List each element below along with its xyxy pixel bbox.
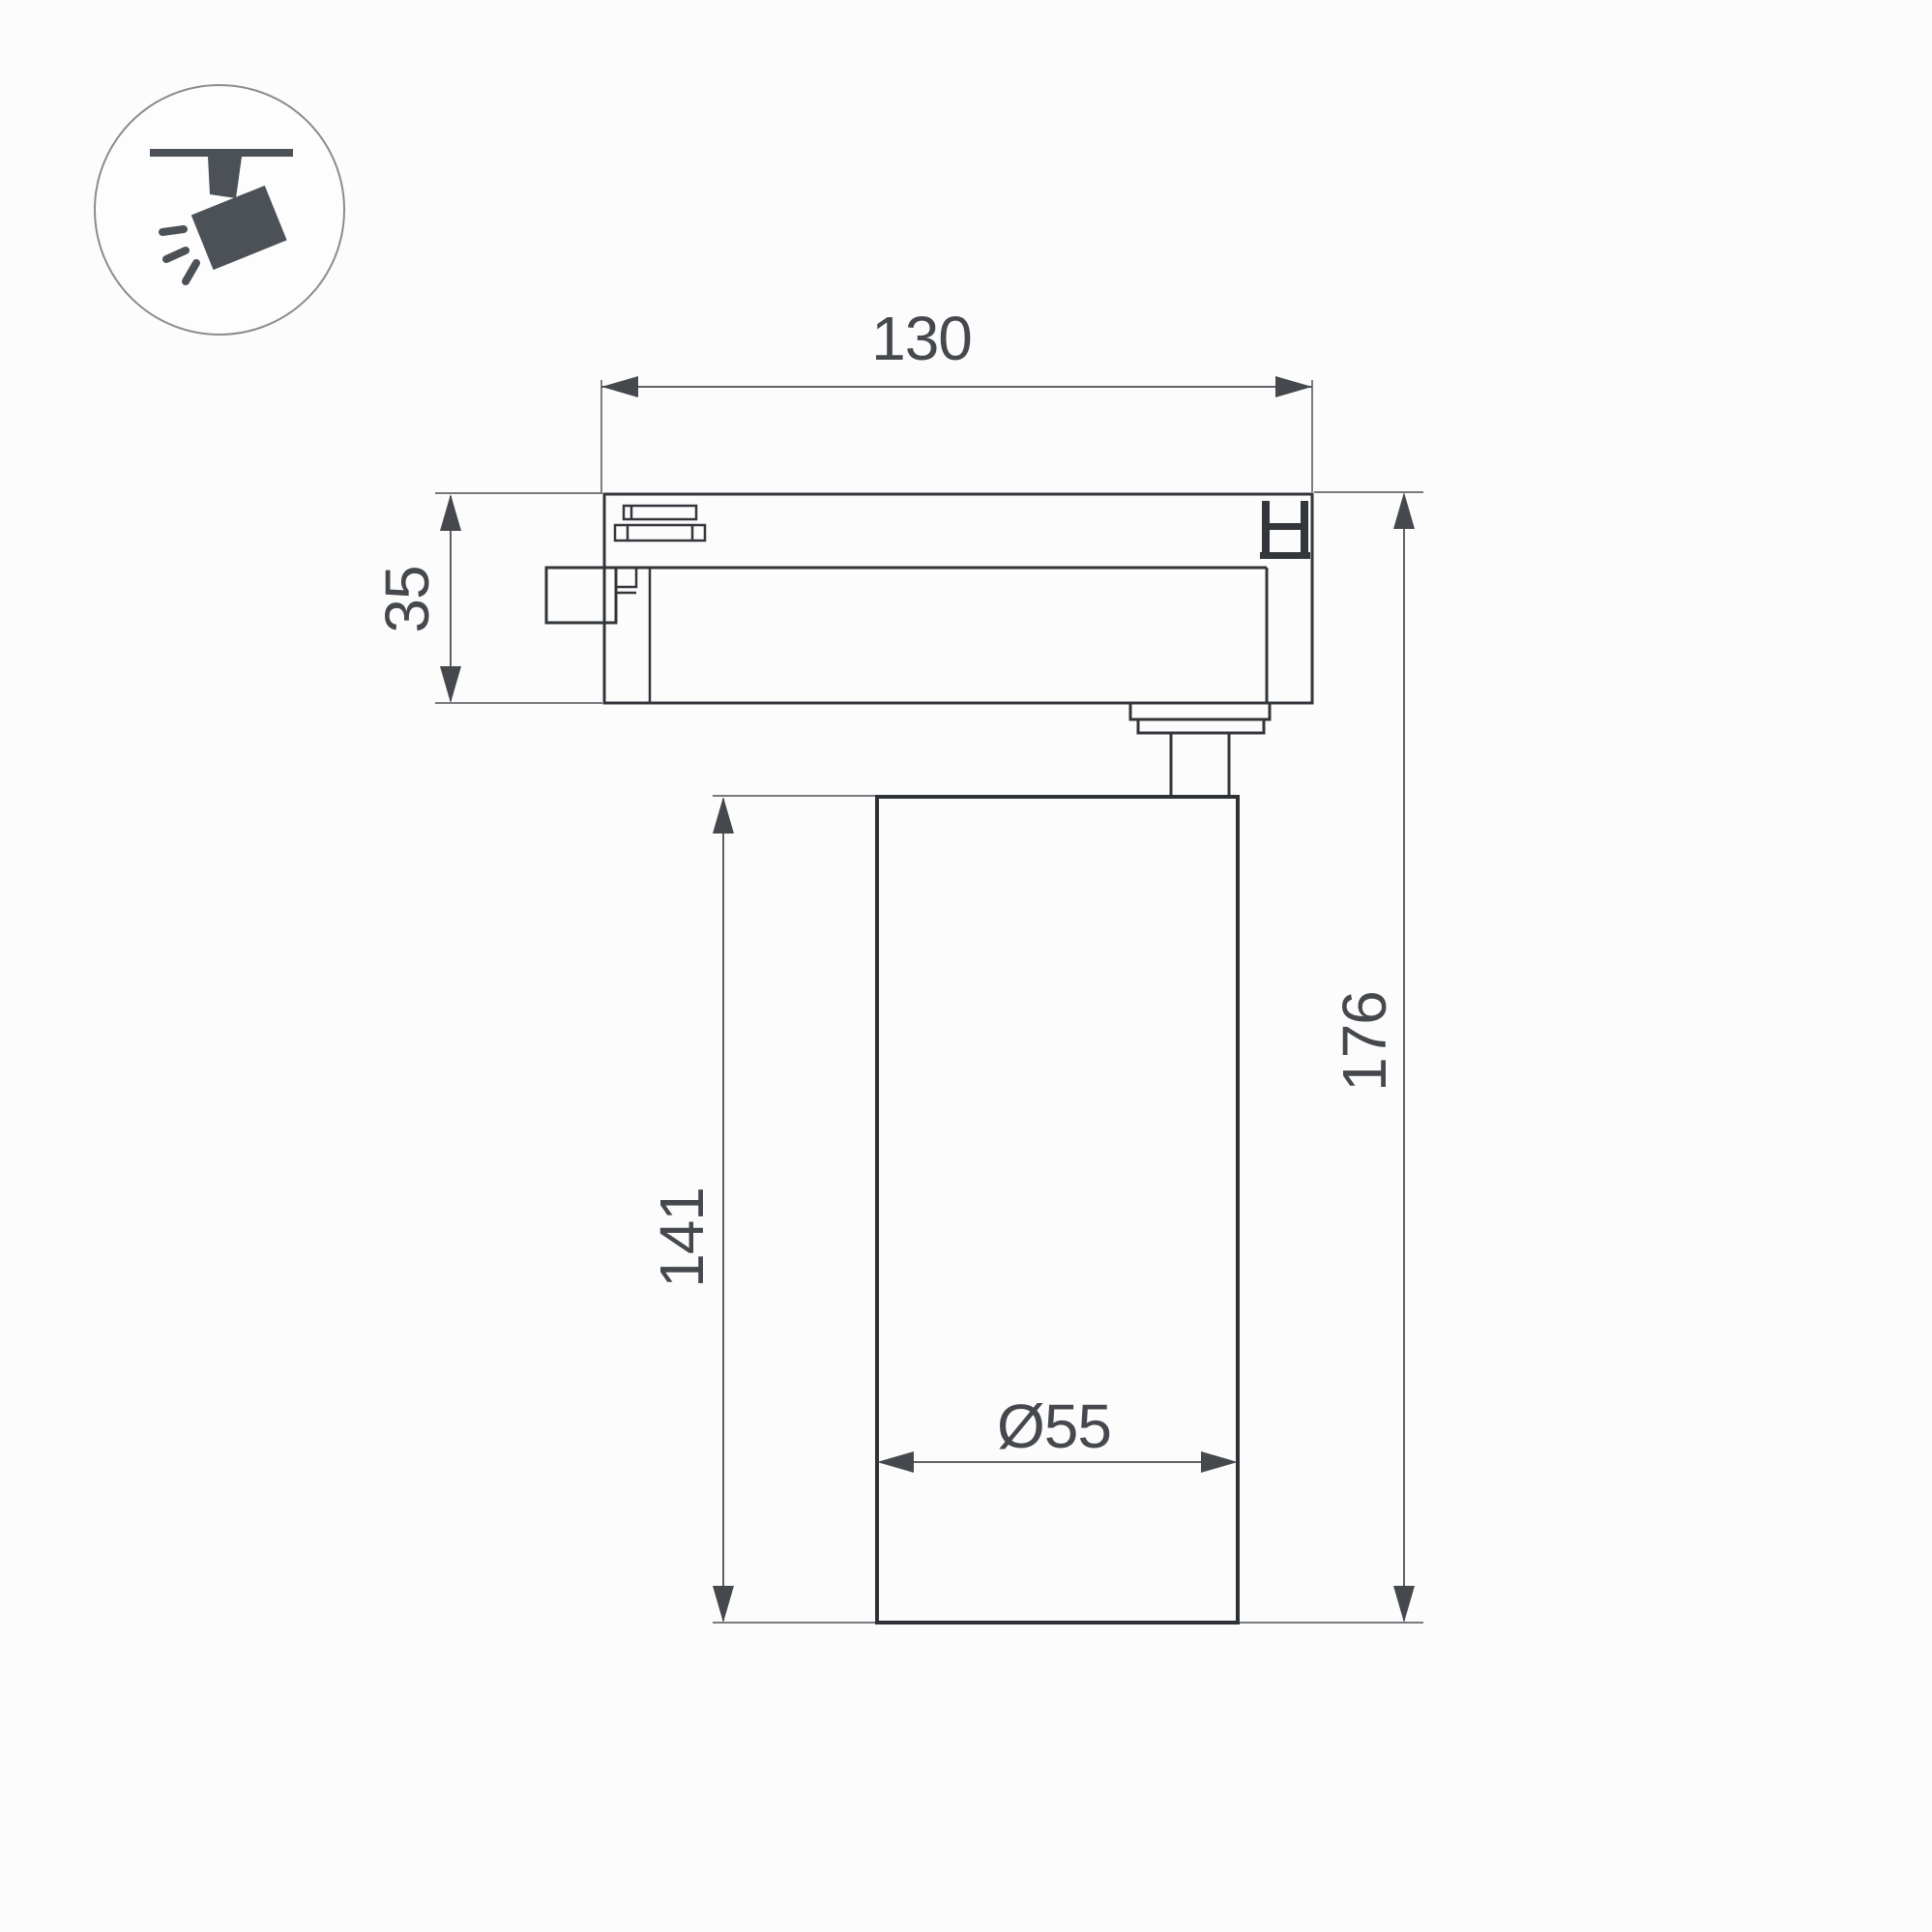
arrow-left xyxy=(877,1451,914,1473)
arrow-up xyxy=(713,797,734,834)
icon-light-ray xyxy=(162,229,184,232)
dim-track-height: 35 xyxy=(372,493,602,703)
connector-stem xyxy=(1130,703,1270,797)
track-spotlight-icon xyxy=(95,85,344,335)
icon-stem xyxy=(208,157,242,198)
dim-body-diameter: Ø55 xyxy=(877,1391,1238,1473)
dim-track-width-label: 130 xyxy=(871,304,972,373)
icon-track-bar xyxy=(150,149,293,157)
arrow-up xyxy=(1393,492,1415,529)
lock-clamp-bridge xyxy=(1265,523,1303,530)
dim-body-diameter-label: Ø55 xyxy=(997,1391,1111,1461)
lamp-body-outline xyxy=(877,797,1238,1623)
stem-flange-upper xyxy=(1130,703,1270,719)
arrow-right xyxy=(1275,376,1312,397)
dim-total-height-label: 176 xyxy=(1330,991,1399,1092)
dim-body-height: 141 xyxy=(647,796,875,1623)
technical-drawing: 130 35 141 176 xyxy=(0,0,1932,1932)
stem-flange-lower xyxy=(1138,719,1264,733)
dim-track-height-label: 35 xyxy=(372,566,442,632)
lamp-body xyxy=(877,797,1238,1623)
contact-clip xyxy=(624,506,696,519)
arrow-up xyxy=(440,494,461,531)
arrow-down xyxy=(713,1586,734,1623)
arrow-down xyxy=(1393,1586,1415,1623)
lock-clamp-base xyxy=(1260,552,1310,559)
arrow-right xyxy=(1201,1451,1238,1473)
arrow-left xyxy=(601,376,638,397)
arrow-down xyxy=(440,666,461,703)
adapter-outer-body xyxy=(604,494,1312,703)
track-adapter xyxy=(546,494,1312,703)
dim-track-width: 130 xyxy=(601,304,1312,492)
dim-body-height-label: 141 xyxy=(647,1187,717,1288)
adapter-latch xyxy=(616,568,636,587)
